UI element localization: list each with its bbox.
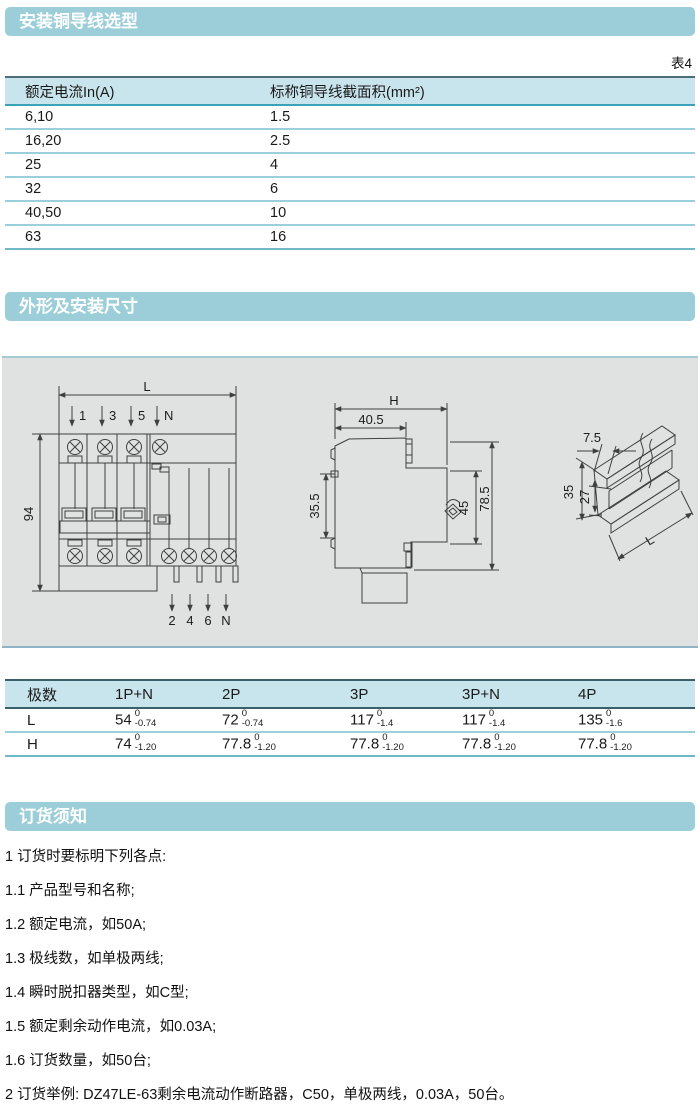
cell-dim: 1350-1.6 xyxy=(578,708,695,732)
cell-dim: 720-0.74 xyxy=(222,708,350,732)
note-line: 1.6 订货数量，如50台; xyxy=(5,1044,695,1078)
table-row: 326 xyxy=(5,177,695,201)
note-line: 1 订货时要标明下列各点: xyxy=(5,840,695,874)
dimension-table: 极数 1P+N 2P 3P 3P+N 4P L 540-0.74 720-0.7… xyxy=(5,679,695,757)
note-line: 1.1 产品型号和名称; xyxy=(5,874,695,908)
table-row: 6,101.5 xyxy=(5,105,695,129)
note-line: 1.2 额定电流，如50A; xyxy=(5,908,695,942)
col-header-4p: 4P xyxy=(578,680,695,708)
datasheet-page: 安装铜导线选型 表4 额定电流In(A) 标称铜导线截面积(mm²) 6,101… xyxy=(0,0,700,1117)
note-line: 1.5 额定剩余动作电流，如0.03A; xyxy=(5,1010,695,1044)
col-header-poles: 极数 xyxy=(5,680,115,708)
cell-current: 6,10 xyxy=(5,105,250,129)
col-header-3pn: 3P+N xyxy=(462,680,578,708)
wire-selection-table: 额定电流In(A) 标称铜导线截面积(mm²) 6,101.5 16,202.5… xyxy=(5,76,695,250)
dim-label-94: 94 xyxy=(21,507,36,521)
table-row: L 540-0.74 720-0.74 1170-1.4 1170-1.4 13… xyxy=(5,708,695,732)
dim-label-78-5: 78.5 xyxy=(477,486,492,511)
note-line: 2 订货举例: DZ47LE-63剩余电流动作断路器，C50，单极两线，0.03… xyxy=(5,1078,695,1112)
din-rail-drawing: 7.5 35 27 L xyxy=(561,426,693,561)
terminal-label-N-bottom: N xyxy=(221,613,230,628)
terminal-label-2: 2 xyxy=(168,613,175,628)
front-view-drawing: L 1 3 5 N xyxy=(21,379,238,628)
dim-label-H: H xyxy=(389,393,398,408)
note-line: 1.3 极线数，如单极两线; xyxy=(5,942,695,976)
section-header-dimensions: 外形及安装尺寸 xyxy=(5,292,695,321)
row-label-L: L xyxy=(5,708,115,732)
dimension-drawings: L 1 3 5 N xyxy=(2,358,698,646)
dim-label-27: 27 xyxy=(577,490,592,504)
col-header-3p: 3P xyxy=(350,680,462,708)
table-row: 16,202.5 xyxy=(5,129,695,153)
row-label-H: H xyxy=(5,732,115,756)
cell-current: 25 xyxy=(5,153,250,177)
col-header-1pn: 1P+N xyxy=(115,680,222,708)
cell-dim: 740-1.20 xyxy=(115,732,222,756)
table-row: 254 xyxy=(5,153,695,177)
table4-label: 表4 xyxy=(671,52,692,72)
col-header-2p: 2P xyxy=(222,680,350,708)
side-view-drawing: H 40.5 xyxy=(307,393,499,603)
cell-area: 6 xyxy=(250,177,695,201)
note-line: 1.4 瞬时脱扣器类型，如C型; xyxy=(5,976,695,1010)
cell-dim: 1170-1.4 xyxy=(462,708,578,732)
cell-current: 32 xyxy=(5,177,250,201)
ordering-notes: 1 订货时要标明下列各点: 1.1 产品型号和名称; 1.2 额定电流，如50A… xyxy=(5,840,695,1112)
dim-label-7-5: 7.5 xyxy=(583,430,601,445)
dim-label-35-5: 35.5 xyxy=(307,493,322,518)
cell-dim: 1170-1.4 xyxy=(350,708,462,732)
cell-dim: 77.80-1.20 xyxy=(222,732,350,756)
dim-label-40-5: 40.5 xyxy=(358,412,383,427)
terminal-label-4: 4 xyxy=(186,613,193,628)
cell-area: 10 xyxy=(250,201,695,225)
cell-dim: 77.80-1.20 xyxy=(462,732,578,756)
dim-label-35: 35 xyxy=(561,485,576,499)
table-row: 6316 xyxy=(5,225,695,249)
col-header-wire-area: 标称铜导线截面积(mm²) xyxy=(250,77,695,105)
terminal-label-3: 3 xyxy=(109,408,116,423)
cell-area: 2.5 xyxy=(250,129,695,153)
cell-current: 40,50 xyxy=(5,201,250,225)
terminal-label-N-top: N xyxy=(164,408,173,423)
terminal-label-6: 6 xyxy=(204,613,211,628)
dim-label-rail-L: L xyxy=(643,532,657,549)
terminal-label-1: 1 xyxy=(79,408,86,423)
dimension-drawings-panel: L 1 3 5 N xyxy=(2,356,698,648)
table-header-row: 极数 1P+N 2P 3P 3P+N 4P xyxy=(5,680,695,708)
cell-dim: 77.80-1.20 xyxy=(578,732,695,756)
cell-area: 1.5 xyxy=(250,105,695,129)
cell-dim: 77.80-1.20 xyxy=(350,732,462,756)
dim-label-front-L: L xyxy=(143,379,150,394)
col-header-rated-current: 额定电流In(A) xyxy=(5,77,250,105)
cell-current: 63 xyxy=(5,225,250,249)
dim-label-45: 45 xyxy=(456,501,471,515)
section-header-wire-selection: 安装铜导线选型 xyxy=(5,7,695,36)
table-header-row: 额定电流In(A) 标称铜导线截面积(mm²) xyxy=(5,77,695,105)
table-row: 40,5010 xyxy=(5,201,695,225)
cell-area: 4 xyxy=(250,153,695,177)
section-header-ordering: 订货须知 xyxy=(5,802,695,831)
cell-current: 16,20 xyxy=(5,129,250,153)
cell-area: 16 xyxy=(250,225,695,249)
terminal-label-5: 5 xyxy=(138,408,145,423)
table-row: H 740-1.20 77.80-1.20 77.80-1.20 77.80-1… xyxy=(5,732,695,756)
cell-dim: 540-0.74 xyxy=(115,708,222,732)
